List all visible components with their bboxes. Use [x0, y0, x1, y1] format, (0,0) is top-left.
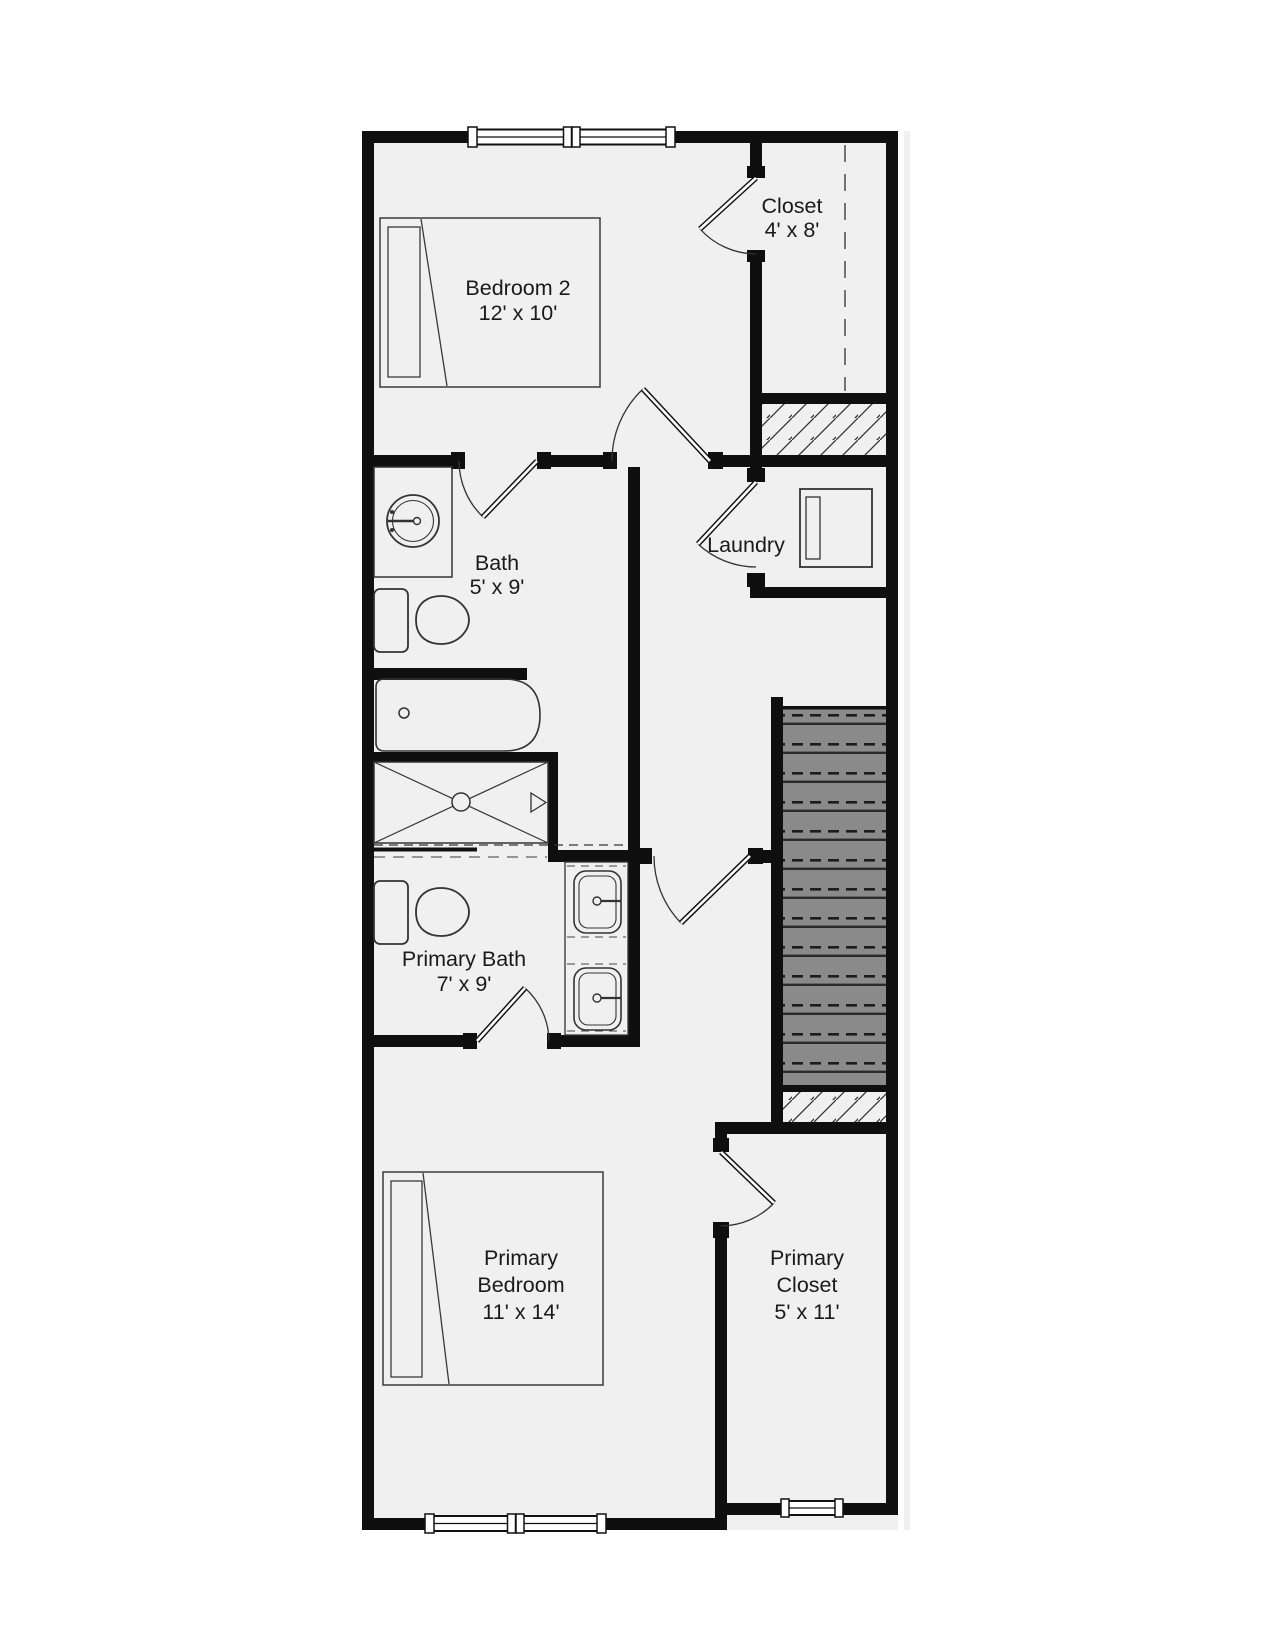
room-label-bath: Bath: [475, 551, 519, 575]
room-label-primary-closet-line2: Closet: [777, 1273, 838, 1297]
room-label-bedroom2: Bedroom 2: [465, 276, 570, 300]
floor-plan-page: Bedroom 2 12' x 10' Closet 4' x 8' Bath …: [0, 0, 1275, 1650]
room-label-primary-closet-line1: Primary: [770, 1246, 844, 1270]
floor-plan-drawing: Bedroom 2 12' x 10' Closet 4' x 8' Bath …: [0, 0, 1275, 1650]
room-dims-bath: 5' x 9': [470, 575, 525, 599]
room-label-primary-bedroom-line1: Primary: [484, 1246, 558, 1270]
room-dims-primary-bedroom: 11' x 14': [482, 1300, 559, 1324]
window-primary-bedroom: [425, 1514, 606, 1533]
room-label-primary-bath: Primary Bath: [402, 947, 526, 971]
room-label-laundry: Laundry: [707, 533, 785, 557]
room-dims-bedroom2: 12' x 10': [479, 301, 558, 325]
hatch-area-upper: [762, 404, 886, 457]
room-label-primary-bedroom-line2: Bedroom: [477, 1273, 564, 1297]
room-dims-primary-closet: 5' x 11': [774, 1300, 839, 1324]
stairs: [783, 706, 886, 1092]
floor-mask: [898, 131, 904, 1530]
hatch-area-lower: [783, 1091, 886, 1122]
room-label-closet: Closet: [762, 194, 823, 218]
room-dims-closet: 4' x 8': [765, 218, 820, 242]
window-bedroom2: [468, 127, 675, 147]
window-primary-closet: [781, 1499, 843, 1517]
room-dims-primary-bath: 7' x 9': [437, 972, 492, 996]
